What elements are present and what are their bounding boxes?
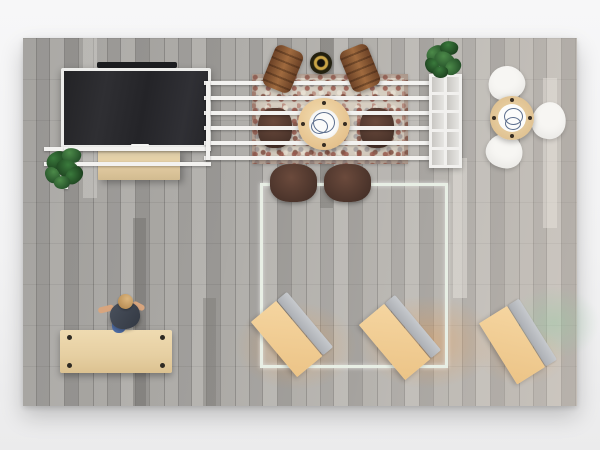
dining-table[interactable]: [298, 98, 350, 150]
desk-bolt: [67, 363, 72, 368]
potted-plant-left[interactable]: [44, 146, 88, 192]
desk-bolt: [160, 335, 165, 340]
table-bolt: [322, 101, 326, 105]
dining-chair-bottom-right[interactable]: [324, 164, 371, 202]
person[interactable]: [98, 292, 150, 338]
person-head: [118, 294, 133, 309]
shelf-compartment: [447, 150, 459, 165]
shelf-compartment: [432, 95, 444, 110]
cup-sketch: [505, 117, 521, 130]
tv[interactable]: [61, 68, 211, 148]
room-render: [0, 0, 600, 450]
plant-leaf: [53, 175, 71, 191]
plant-leaf: [432, 65, 449, 79]
shelf-compartment: [432, 150, 444, 165]
table-bolt: [510, 98, 514, 102]
desk-bolt: [160, 363, 165, 368]
decor-bowl[interactable]: [310, 52, 332, 74]
table-bolt: [528, 116, 532, 120]
shelf-compartment: [447, 132, 459, 147]
shelf-rail: [204, 81, 432, 85]
tv-screen: [64, 71, 208, 145]
table-bolt: [322, 143, 326, 147]
shelf-compartment: [432, 113, 444, 128]
cafe-table[interactable]: [490, 96, 534, 140]
table-bolt: [301, 122, 305, 126]
shelf-compartment: [432, 132, 444, 147]
desk-bolt: [67, 335, 72, 340]
bookshelf[interactable]: [429, 74, 462, 168]
shelf-compartment: [447, 113, 459, 128]
table-bolt: [492, 116, 496, 120]
shelf-post: [206, 81, 210, 160]
table-bolt: [343, 122, 347, 126]
table-bolt: [510, 134, 514, 138]
plate-sketch: [311, 119, 328, 134]
shelf-compartment: [447, 95, 459, 110]
shelf-rail: [204, 156, 432, 160]
dining-chair-bottom-left[interactable]: [270, 164, 317, 202]
potted-plant-shelf[interactable]: [424, 40, 464, 80]
